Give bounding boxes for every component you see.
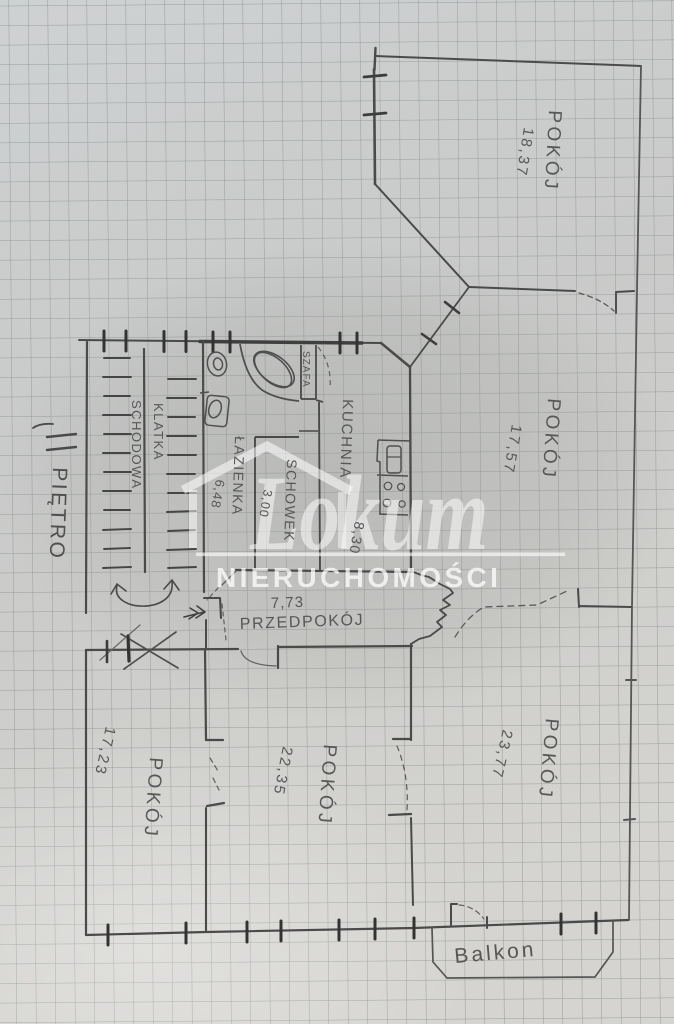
svg-text:SCHODOWA: SCHODOWA — [129, 400, 144, 490]
svg-text:SCHOWEK: SCHOWEK — [281, 459, 300, 542]
svg-text:7,73: 7,73 — [271, 594, 305, 612]
svg-text:KLATKA: KLATKA — [151, 403, 166, 461]
svg-text:KUCHNIA: KUCHNIA — [336, 399, 356, 480]
svg-text:NIERUCHOMOŚCI: NIERUCHOMOŚCI — [216, 562, 501, 593]
svg-text:ŁAZIENKA: ŁAZIENKA — [229, 436, 248, 516]
svg-text:POKÓJ: POKÓJ — [540, 110, 566, 193]
svg-text:SZAFA: SZAFA — [300, 351, 311, 388]
svg-text:PIĘTRO: PIĘTRO — [45, 467, 71, 561]
